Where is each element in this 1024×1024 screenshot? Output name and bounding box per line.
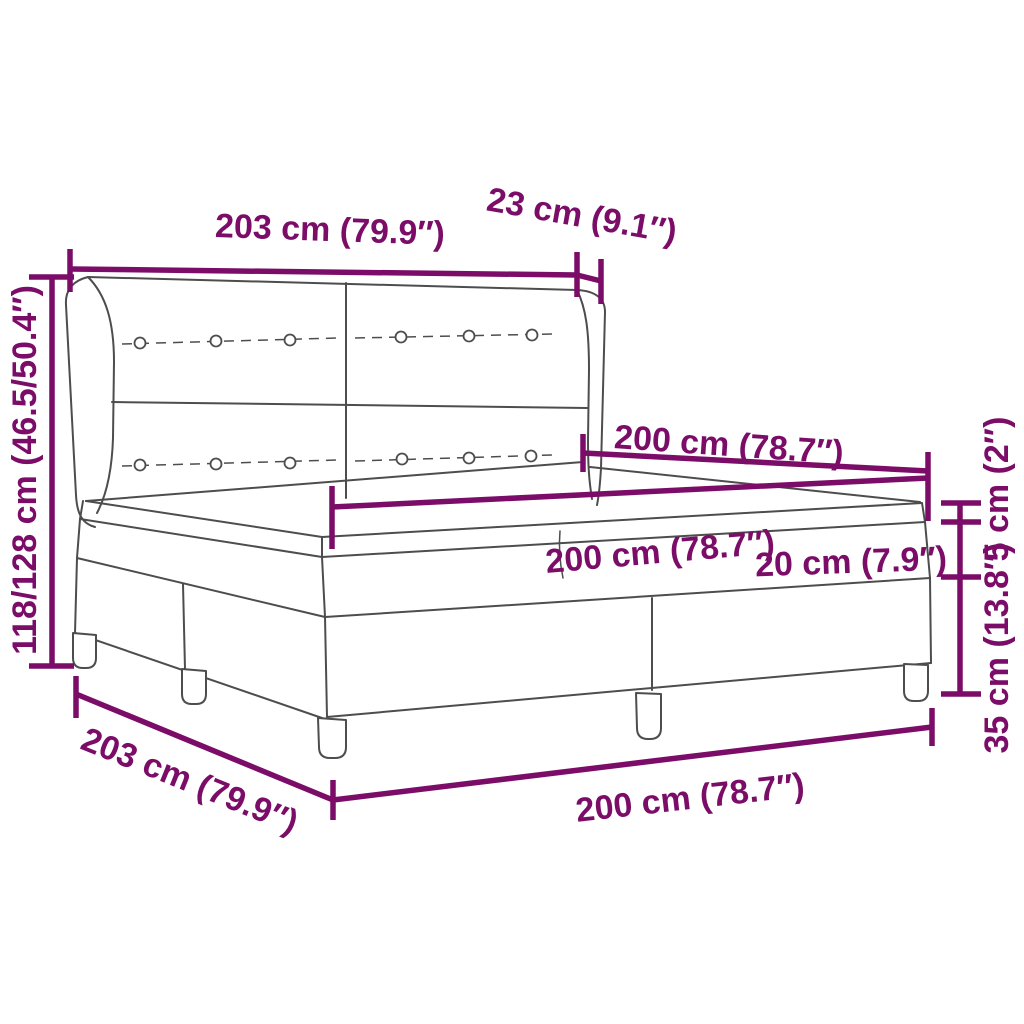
base-left-edge bbox=[75, 558, 77, 633]
dim-label-total-height: 118/128 cm (46.5/50.4″) bbox=[6, 285, 44, 655]
dim-label-mattress-height: 20 cm (7.9″) bbox=[754, 540, 947, 585]
base-left-split bbox=[183, 584, 185, 669]
button bbox=[285, 458, 296, 469]
button bbox=[285, 335, 296, 346]
leg bbox=[182, 669, 206, 704]
legs bbox=[73, 633, 928, 758]
headboard-tufting-row-bottom bbox=[122, 451, 552, 471]
button bbox=[135, 460, 146, 471]
headboard-right-wing bbox=[577, 290, 605, 505]
leg bbox=[636, 693, 661, 739]
button bbox=[527, 330, 538, 341]
base-corner-near bbox=[325, 617, 327, 717]
dim-label-bed-length: 200 cm (78.7″) bbox=[613, 418, 845, 472]
leg bbox=[73, 633, 96, 668]
topper-corner-right bbox=[922, 503, 925, 522]
dim-label-frame-length-bottom: 200 cm (78.7″) bbox=[574, 766, 807, 830]
button bbox=[135, 338, 146, 349]
mattress-bottom-right-edge bbox=[325, 578, 930, 617]
leg bbox=[904, 664, 928, 701]
headboard-left-wing bbox=[66, 277, 95, 527]
topper-top-right-edge bbox=[322, 503, 922, 537]
base-right-edge bbox=[930, 578, 931, 663]
dim-label-base-height: 35 cm (13.8″) bbox=[978, 543, 1016, 754]
dim-label-headboard-depth: 23 cm (9.1″) bbox=[484, 181, 680, 252]
dim-line-headboard-depth bbox=[577, 275, 601, 281]
button bbox=[211, 459, 222, 470]
dimension-diagram: 203 cm (79.9″) 23 cm (9.1″) 118/128 cm (… bbox=[0, 0, 1024, 1024]
headboard-tufting-row-top bbox=[122, 330, 552, 349]
button bbox=[397, 454, 408, 465]
topper bbox=[80, 462, 925, 557]
leg bbox=[318, 718, 346, 758]
mattress-corner-near bbox=[322, 557, 325, 617]
bed-dimension-drawing: 203 cm (79.9″) 23 cm (9.1″) 118/128 cm (… bbox=[0, 0, 1024, 1024]
dim-line-headboard-width bbox=[70, 269, 577, 275]
dim-label-topper-height: 5 cm (2″) bbox=[978, 417, 1016, 562]
mattress-bottom-left-edge bbox=[77, 558, 325, 617]
dim-label-headboard-width: 203 cm (79.9″) bbox=[214, 207, 445, 253]
button bbox=[396, 332, 407, 343]
button bbox=[464, 331, 475, 342]
button bbox=[211, 336, 222, 347]
headboard-left-wing-roll bbox=[88, 277, 114, 513]
headboard bbox=[66, 277, 605, 527]
dim-label-mattress-width: 200 cm (78.7″) bbox=[544, 523, 776, 581]
headboard-top-edge bbox=[88, 277, 577, 290]
mattress-corner-left bbox=[77, 519, 80, 558]
dimension-lines bbox=[29, 249, 981, 820]
button bbox=[464, 453, 475, 464]
topper-top-left-edge bbox=[86, 501, 322, 537]
button bbox=[526, 451, 537, 462]
base-bottom-right-edge bbox=[327, 663, 931, 717]
topper-bottom-left-edge bbox=[80, 519, 322, 557]
headboard-middle-seam bbox=[112, 402, 587, 408]
